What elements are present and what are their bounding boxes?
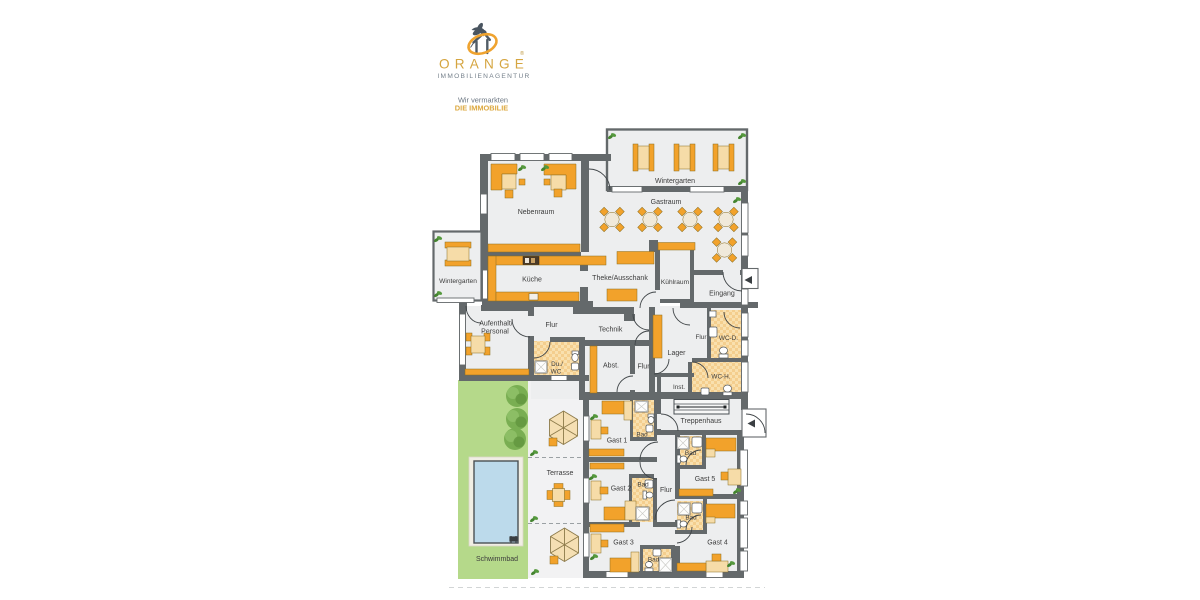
svg-text:Bad: Bad [685,515,697,522]
svg-text:Inst.: Inst. [673,384,685,391]
svg-text:IMMOBILIENAGENTUR: IMMOBILIENAGENTUR [437,73,530,80]
svg-text:Gast 5: Gast 5 [695,476,716,483]
svg-text:Technik: Technik [599,327,623,334]
svg-text:Gastraum: Gastraum [651,199,682,206]
svg-text:WC-H.: WC-H. [711,374,730,381]
svg-text:Flur: Flur [637,364,650,371]
svg-text:Flur: Flur [695,334,707,341]
svg-text:Nebenraum: Nebenraum [518,209,555,216]
svg-text:Schwimmbad: Schwimmbad [476,556,518,563]
svg-text:Flur: Flur [660,487,673,494]
svg-text:Gast 3: Gast 3 [613,540,634,547]
svg-text:Kühlraum: Kühlraum [661,279,690,286]
svg-text:ORANGE: ORANGE [439,57,529,72]
svg-text:Theke/Ausschank: Theke/Ausschank [592,275,648,282]
svg-text:Bad: Bad [685,450,697,457]
svg-text:Gast 2: Gast 2 [611,486,632,493]
svg-text:Flur: Flur [545,322,558,329]
svg-text:DIE IMMOBILIE: DIE IMMOBILIE [455,104,508,113]
svg-text:WC-D.: WC-D. [719,335,738,342]
svg-text:Gast 1: Gast 1 [607,438,628,445]
svg-text:Küche: Küche [522,277,542,284]
svg-text:Du./WC: Du./WC [551,361,563,376]
svg-text:Eingang: Eingang [709,291,735,298]
svg-text:Bad: Bad [637,482,649,489]
svg-text:Wintergarten: Wintergarten [655,178,695,185]
svg-text:Wintergarten: Wintergarten [439,278,477,285]
svg-text:Bad: Bad [648,557,660,564]
svg-text:Treppenhaus: Treppenhaus [681,418,722,425]
svg-text:Lager: Lager [668,350,687,357]
svg-text:Abst.: Abst. [603,363,619,370]
svg-text:Gast 4: Gast 4 [707,540,728,547]
svg-text:Bad: Bad [636,432,648,439]
svg-text:Terrasse: Terrasse [547,470,574,477]
svg-text:Aufenthalt/Personal: Aufenthalt/Personal [479,321,513,336]
